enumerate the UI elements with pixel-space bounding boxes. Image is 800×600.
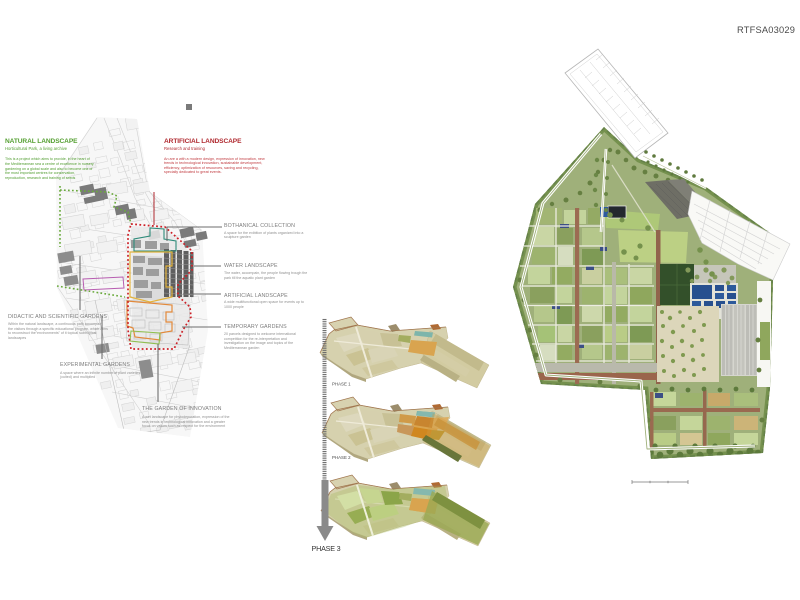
svg-text:PHASE 2: PHASE 2	[332, 455, 351, 460]
svg-text:PHASE 1: PHASE 1	[332, 382, 351, 387]
